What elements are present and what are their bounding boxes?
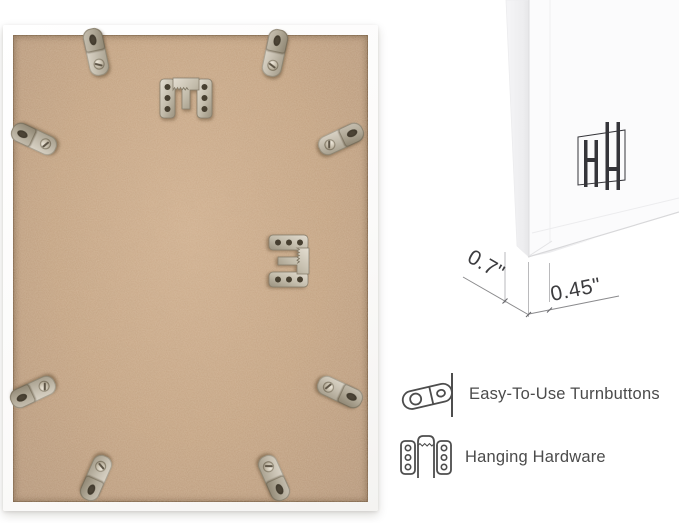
turnbutton-icon (400, 369, 456, 419)
product-image: 0.7" 0.45" Easy-To-Use Turnbuttons (0, 0, 679, 523)
feature-list: Easy-To-Use Turnbuttons Hanging Hardware (400, 365, 679, 523)
feature-label: Hanging Hardware (465, 448, 606, 467)
frame-side-face (506, 0, 529, 257)
frame-back-photo (3, 25, 378, 511)
feature-label: Easy-To-Use Turnbuttons (469, 385, 660, 404)
feature-hanging-hardware: Hanging Hardware (400, 431, 606, 483)
depth-dimension-label: 0.7" (464, 245, 509, 284)
sawtooth-hanger (266, 234, 312, 288)
frame-corner-closeup: 0.7" 0.45" (430, 0, 679, 335)
sawtooth-hanger (159, 75, 213, 121)
dimension-lines (505, 252, 550, 317)
hanging-hardware-icon (400, 432, 452, 482)
feature-turnbuttons: Easy-To-Use Turnbuttons (400, 368, 660, 420)
